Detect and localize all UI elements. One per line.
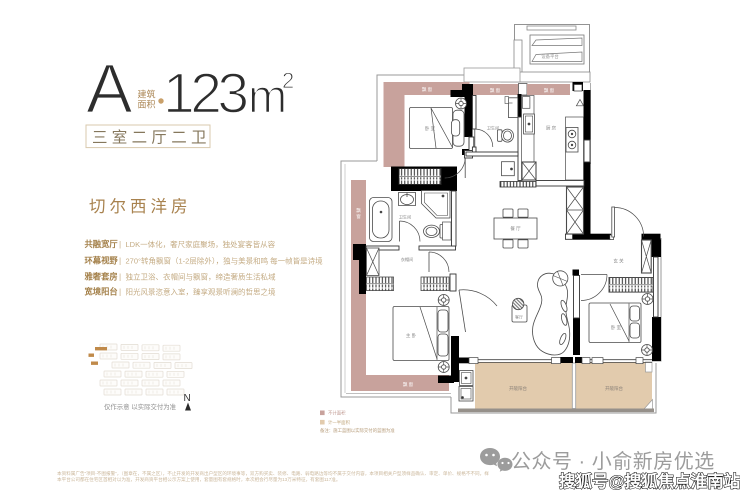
svg-text:A: A [86, 50, 133, 128]
svg-text:LDK一体化，奢尺家庭聚场，独处宴客皆从容: LDK一体化，奢尺家庭聚场，独处宴客皆从容 [126, 239, 276, 249]
svg-text:本资料属广告“项目-不图报警”，（图章在，不属之区），不止开: 本资料属广告“项目-不图报警”，（图章在，不属之区），不止开发的开发商出户型区的… [57, 470, 489, 477]
svg-text:卫生间: 卫生间 [487, 125, 500, 132]
svg-text:|: | [119, 256, 121, 266]
svg-text:卧 室: 卧 室 [425, 125, 436, 132]
svg-text:270°转角飘窗（1-2层除外），独与美景和鸣 每一帧皆是诗: 270°转角飘窗（1-2层除外），独与美景和鸣 每一帧皆是诗境 [126, 256, 324, 266]
svg-text:|: | [119, 239, 121, 249]
svg-text:雅奢套房: 雅奢套房 [84, 272, 118, 282]
svg-text:开敞阳台: 开敞阳台 [509, 385, 527, 392]
svg-text:卫生间: 卫生间 [399, 214, 412, 221]
svg-text:面积: 面积 [138, 99, 156, 110]
svg-text:飘 窗: 飘 窗 [422, 86, 433, 93]
svg-text:设备平台: 设备平台 [541, 53, 559, 60]
svg-text:切尔西洋房: 切尔西洋房 [89, 197, 192, 216]
svg-text:独立卫浴、衣帽间与飘窗，缔造奢质生活私域: 独立卫浴、衣帽间与飘窗，缔造奢质生活私域 [126, 272, 276, 282]
svg-text:仅作示意 以实际交付为准: 仅作示意 以实际交付为准 [104, 402, 177, 411]
svg-text:|: | [119, 272, 121, 282]
svg-text:客厅: 客厅 [515, 314, 523, 320]
svg-text:衣帽间: 衣帽间 [401, 256, 414, 263]
svg-text:搜狐号@搜狐焦点淮南站: 搜狐号@搜狐焦点淮南站 [559, 471, 740, 491]
svg-text:玄 关: 玄 关 [613, 258, 624, 265]
svg-text:123: 123 [163, 62, 247, 126]
svg-text:不计面积: 不计面积 [328, 410, 346, 417]
svg-text:餐 厅: 餐 厅 [510, 225, 521, 232]
svg-text:共融宽厅: 共融宽厅 [85, 239, 119, 249]
svg-text:主 卧: 主 卧 [406, 332, 417, 339]
svg-text:公众号 · 小俞新房优选: 公众号 · 小俞新房优选 [511, 450, 715, 473]
svg-text:窗: 窗 [356, 213, 361, 220]
svg-text:宽境阳台: 宽境阳台 [85, 287, 118, 297]
svg-text:2: 2 [282, 68, 294, 93]
svg-text:三室二厅二卫: 三室二厅二卫 [92, 129, 211, 147]
svg-text:阳光风景恣意入室，臻享观景听澜的哲思之境: 阳光风景恣意入室，臻享观景听澜的哲思之境 [126, 287, 276, 297]
svg-text:环幕视野: 环幕视野 [85, 256, 119, 266]
svg-text:飘 窗: 飘 窗 [544, 87, 555, 94]
svg-text:N: N [184, 393, 191, 404]
svg-text:飘 窗: 飘 窗 [490, 87, 501, 94]
svg-text:卧 室: 卧 室 [611, 324, 622, 331]
svg-text:备注：施工蓝图以实际交付的蓝图为准: 备注：施工蓝图以实际交付的蓝图为准 [320, 427, 395, 434]
svg-text:开敞阳台: 开敞阳台 [605, 385, 623, 392]
svg-text:厨 房: 厨 房 [546, 125, 557, 132]
svg-text:飘 窗: 飘 窗 [403, 381, 414, 388]
svg-text:|: | [119, 287, 121, 297]
svg-text:本平台公司都在住宅区首相对以为准，开发商资平台相公示方案上使: 本平台公司都在住宅区首相对以为准，开发商资平台相公示方案上使用，套量图有套规格时… [57, 476, 340, 483]
svg-text:计一半面积: 计一半面积 [328, 419, 351, 426]
svg-text:建筑: 建筑 [138, 89, 156, 100]
